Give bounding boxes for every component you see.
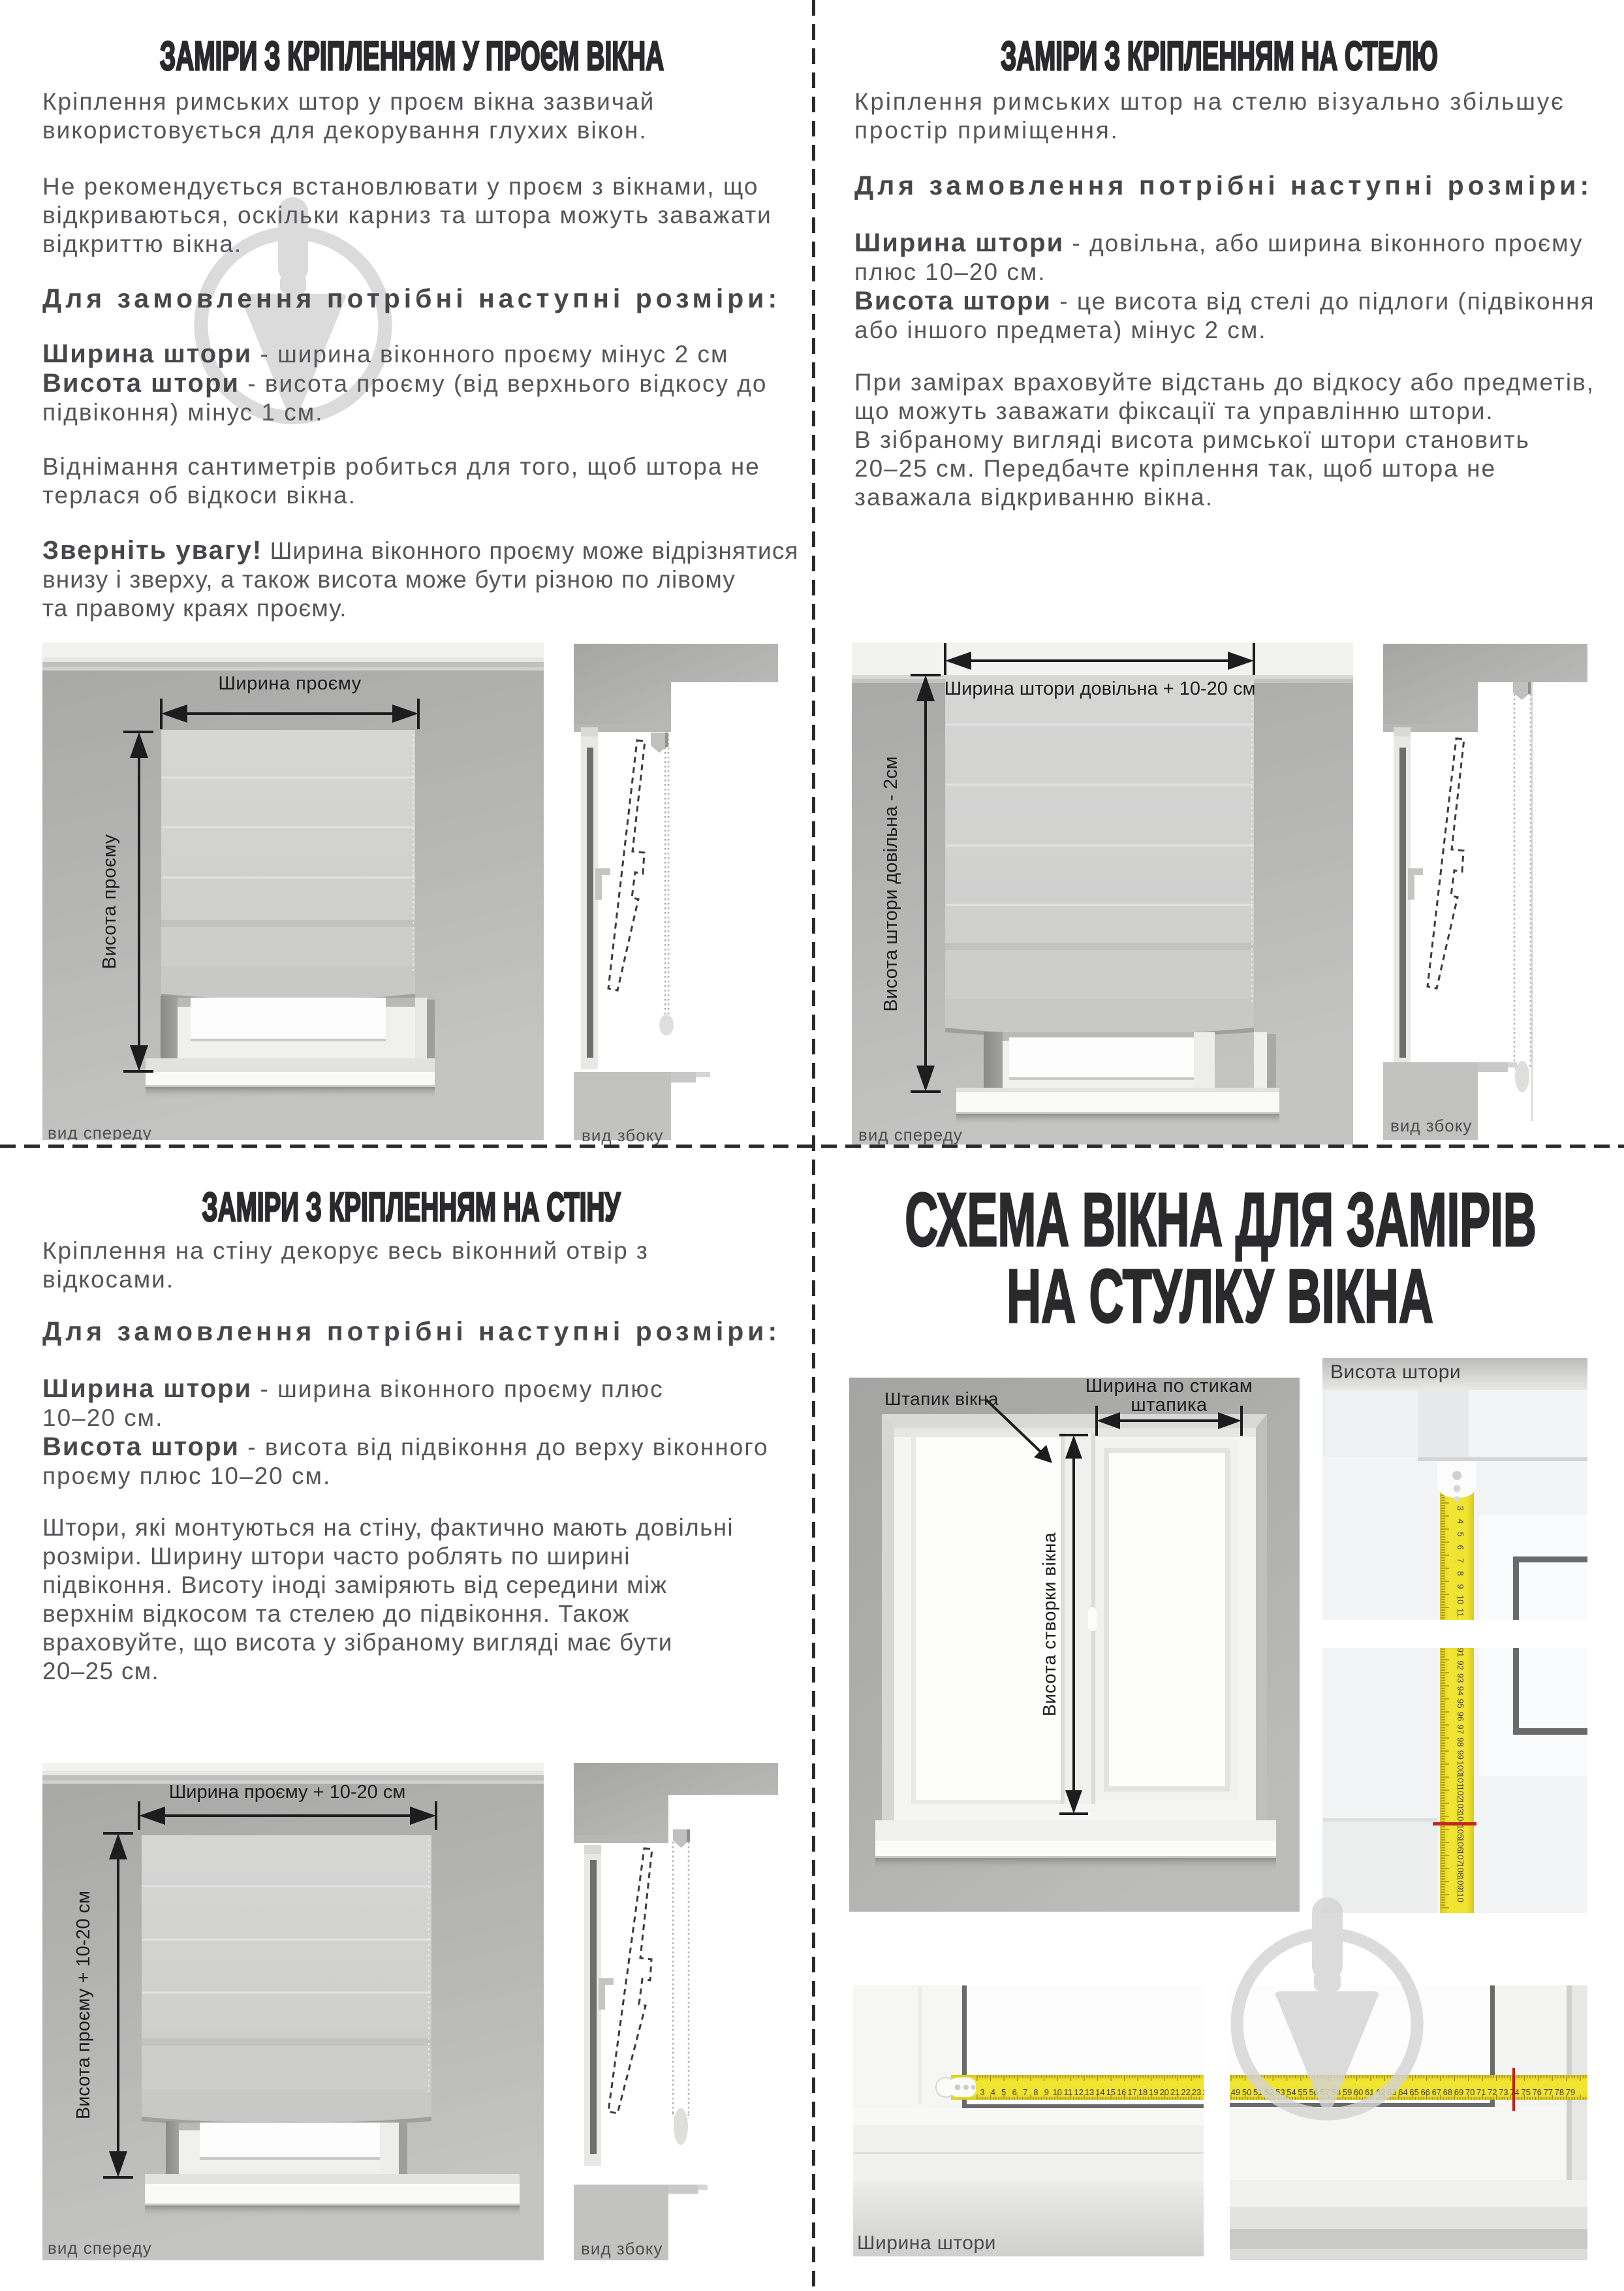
svg-text:7: 7 bbox=[1023, 2087, 1027, 2097]
svg-text:ЗАМІРИ З КРІПЛЕННЯМ НА СТІНУ: ЗАМІРИ З КРІПЛЕННЯМ НА СТІНУ bbox=[202, 1184, 621, 1230]
svg-text:102: 102 bbox=[1456, 1786, 1465, 1801]
svg-text:78: 78 bbox=[1555, 2087, 1564, 2097]
svg-text:19: 19 bbox=[1149, 2087, 1158, 2097]
svg-text:96: 96 bbox=[1456, 1712, 1465, 1721]
svg-text:ЗАМІРИ З КРІПЛЕННЯМ У ПРОЄМ ВІ: ЗАМІРИ З КРІПЛЕННЯМ У ПРОЄМ ВІКНА bbox=[160, 33, 664, 78]
svg-text:16: 16 bbox=[1117, 2087, 1126, 2097]
svg-text:95: 95 bbox=[1456, 1699, 1465, 1708]
svg-text:11: 11 bbox=[1063, 2087, 1072, 2097]
svg-text:10: 10 bbox=[1053, 2087, 1062, 2097]
svg-text:5: 5 bbox=[1001, 2087, 1006, 2097]
svg-text:21: 21 bbox=[1170, 2087, 1179, 2097]
svg-text:71: 71 bbox=[1476, 2087, 1486, 2097]
svg-text:11: 11 bbox=[1456, 1608, 1465, 1617]
svg-text:Ширина по стикам: Ширина по стикам bbox=[1085, 1378, 1253, 1397]
svg-text:91: 91 bbox=[1456, 1648, 1465, 1657]
svg-text:9: 9 bbox=[1044, 2087, 1049, 2097]
svg-text:93: 93 bbox=[1456, 1673, 1465, 1683]
svg-text:СХЕМА ВІКНА ДЛЯ ЗАМІРІВ: СХЕМА ВІКНА ДЛЯ ЗАМІРІВ bbox=[905, 1178, 1537, 1262]
svg-text:106: 106 bbox=[1456, 1837, 1465, 1852]
svg-text:108: 108 bbox=[1456, 1863, 1465, 1877]
svg-text:103: 103 bbox=[1456, 1799, 1465, 1813]
svg-text:6: 6 bbox=[1012, 2087, 1017, 2097]
svg-text:7: 7 bbox=[1456, 1558, 1465, 1562]
svg-text:100: 100 bbox=[1456, 1761, 1465, 1775]
svg-text:8: 8 bbox=[1456, 1571, 1465, 1575]
svg-text:79: 79 bbox=[1566, 2087, 1575, 2097]
svg-text:13: 13 bbox=[1085, 2087, 1094, 2097]
svg-text:23: 23 bbox=[1192, 2087, 1201, 2097]
svg-text:ЗАМІРИ З КРІПЛЕННЯМ НА СТЕЛЮ: ЗАМІРИ З КРІПЛЕННЯМ НА СТЕЛЮ bbox=[1001, 33, 1438, 79]
svg-text:18: 18 bbox=[1138, 2087, 1148, 2097]
svg-text:105: 105 bbox=[1456, 1825, 1465, 1839]
svg-text:17: 17 bbox=[1127, 2087, 1136, 2097]
svg-text:вид спереду: вид спереду bbox=[48, 2238, 152, 2258]
svg-text:НА СТУЛКУ ВІКНА: НА СТУЛКУ ВІКНА bbox=[1007, 1254, 1433, 1338]
svg-text:75: 75 bbox=[1521, 2087, 1530, 2097]
svg-text:Висота створки вікна: Висота створки вікна bbox=[1039, 1532, 1059, 1716]
svg-text:98: 98 bbox=[1456, 1737, 1465, 1746]
svg-text:9: 9 bbox=[1456, 1584, 1465, 1588]
svg-text:10: 10 bbox=[1456, 1595, 1465, 1604]
svg-text:вид збоку: вид збоку bbox=[581, 2239, 663, 2258]
svg-text:Висота проєму + 10-20 см: Висота проєму + 10-20 см bbox=[73, 1891, 94, 2119]
svg-text:77: 77 bbox=[1544, 2087, 1553, 2097]
svg-text:12: 12 bbox=[1074, 2087, 1083, 2097]
svg-text:Штапик вікна: Штапик вікна bbox=[884, 1389, 999, 1409]
svg-text:101: 101 bbox=[1456, 1773, 1465, 1788]
svg-text:92: 92 bbox=[1456, 1660, 1465, 1669]
svg-text:24: 24 bbox=[1202, 2087, 1204, 2097]
svg-text:3: 3 bbox=[980, 2087, 984, 2097]
svg-text:8: 8 bbox=[1033, 2087, 1038, 2097]
svg-text:14: 14 bbox=[1095, 2087, 1104, 2097]
svg-text:Ширина штори: Ширина штори bbox=[857, 2232, 996, 2254]
svg-text:штапика: штапика bbox=[1131, 1395, 1208, 1415]
svg-text:6: 6 bbox=[1456, 1545, 1465, 1549]
svg-text:22: 22 bbox=[1181, 2087, 1190, 2097]
svg-text:68: 68 bbox=[1443, 2087, 1452, 2097]
svg-text:20: 20 bbox=[1160, 2087, 1169, 2097]
svg-text:Ширина проєму + 10-20 см: Ширина проєму + 10-20 см bbox=[169, 1782, 406, 1803]
svg-text:109: 109 bbox=[1456, 1876, 1465, 1890]
svg-text:3: 3 bbox=[1456, 1506, 1465, 1510]
svg-text:4: 4 bbox=[991, 2087, 995, 2097]
svg-text:99: 99 bbox=[1456, 1750, 1465, 1760]
svg-text:69: 69 bbox=[1454, 2087, 1463, 2097]
svg-text:110: 110 bbox=[1456, 1889, 1465, 1903]
svg-text:70: 70 bbox=[1465, 2087, 1475, 2097]
svg-text:94: 94 bbox=[1456, 1686, 1465, 1696]
svg-text:72: 72 bbox=[1488, 2087, 1497, 2097]
svg-text:97: 97 bbox=[1456, 1724, 1465, 1733]
svg-text:73: 73 bbox=[1499, 2087, 1508, 2097]
svg-text:15: 15 bbox=[1106, 2087, 1116, 2097]
svg-text:76: 76 bbox=[1532, 2087, 1541, 2097]
svg-text:5: 5 bbox=[1456, 1532, 1465, 1536]
svg-text:67: 67 bbox=[1432, 2087, 1441, 2097]
svg-text:107: 107 bbox=[1456, 1850, 1465, 1865]
svg-text:4: 4 bbox=[1456, 1519, 1465, 1523]
